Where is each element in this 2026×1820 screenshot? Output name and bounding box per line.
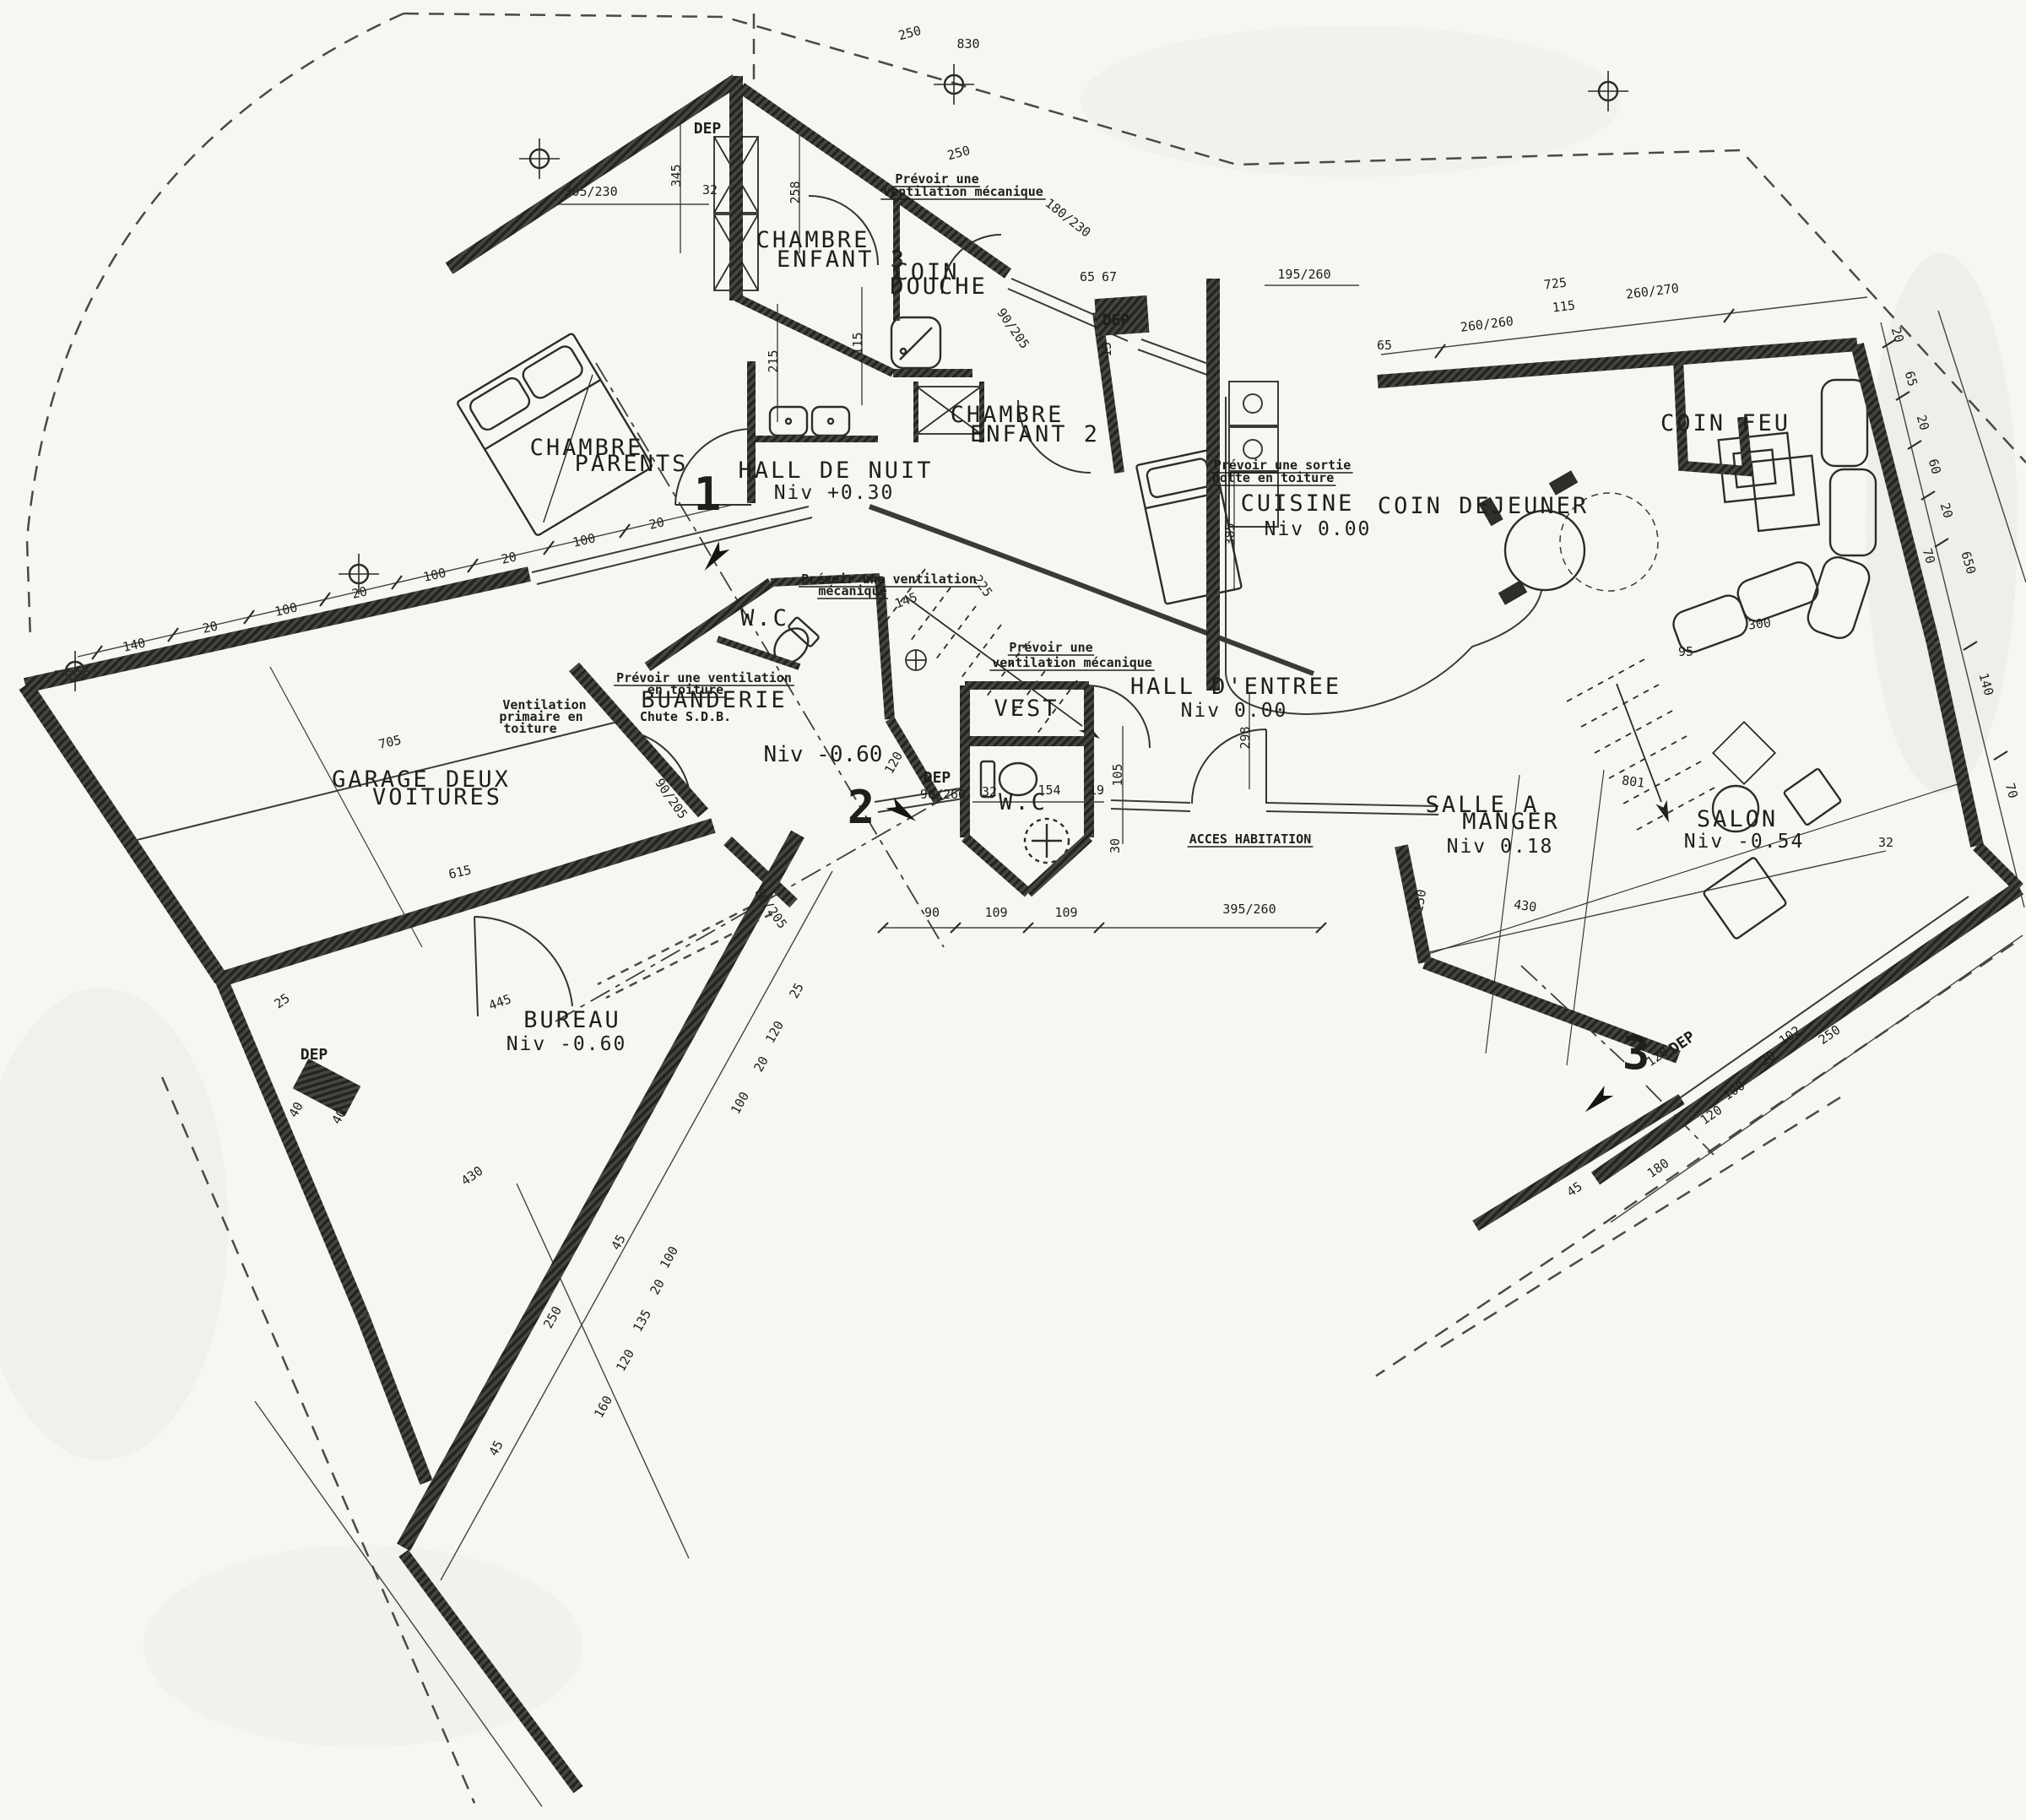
level-label-salle-a-manger: Niv 0.18	[1447, 836, 1554, 858]
dimension-14: 725	[1543, 274, 1568, 292]
dimension-67: 430	[1513, 896, 1537, 915]
dimension-30: 90/260	[920, 787, 966, 802]
dimension-66: 801	[1621, 772, 1645, 791]
floor-plan-drawing: CHAMBREENFANT 3COINDOUCHECHAMBREPARENTSH…	[0, 0, 2026, 1820]
room-label-hall-de-nuit-0: HALL DE NUIT	[738, 458, 933, 484]
room-label-bureau-0: BUREAU	[523, 1007, 621, 1033]
dep-label-0: DEP	[694, 120, 722, 138]
dimension-25: 19	[1089, 783, 1104, 798]
dimension-10: 15	[1099, 342, 1114, 357]
room-label-cuisine-0: CUISINE	[1241, 490, 1355, 517]
dimension-27: 109	[984, 905, 1007, 920]
room-label-salle-a-manger-1: MANGER	[1462, 809, 1560, 835]
dimension-22: 30	[1108, 838, 1123, 853]
dimension-5: 345	[669, 164, 684, 187]
annotation-note-vent-primaire-2: toiture	[503, 721, 556, 736]
dimension-0: 830	[956, 36, 979, 51]
dep-label-1: DEP	[1102, 311, 1130, 329]
dimension-21: 105	[1110, 763, 1125, 786]
dimension-19: 385	[1222, 523, 1238, 545]
annotation-note-ventilation-4-1: en toiture	[647, 682, 723, 697]
dep-label-3: DEP	[301, 1046, 328, 1064]
dimension-18: 65	[1377, 338, 1392, 353]
dimension-16: 115	[1552, 297, 1576, 315]
annotation-note-ventilation-3-1: ventilation mécanique	[992, 655, 1152, 670]
dimension-8: 215	[766, 349, 781, 372]
level-label-salon: Niv -0.54	[1684, 831, 1805, 853]
dimension-4: 305/230	[564, 184, 617, 199]
paper-background	[0, 0, 2026, 1820]
dimension-7: 258	[788, 181, 803, 203]
room-label-salon-0: SALON	[1697, 806, 1778, 832]
dimension-29: 395/260	[1222, 902, 1276, 917]
dimension-9: 115	[850, 332, 865, 355]
room-label-coin-dejeuner-0: COIN DEJEUNER	[1378, 493, 1589, 519]
room-label-coin-douche-1: DOUCHE	[890, 274, 988, 300]
annotation-note-hotte-1: hotte en toiture	[1212, 470, 1335, 485]
annotation-niveau-couloir-0: Niv -0.60	[764, 742, 883, 767]
room-label-coin-feu-0: COIN FEU	[1660, 410, 1790, 436]
dimension-64: 32	[1878, 835, 1893, 850]
annotation-note-acces-0: ACCES HABITATION	[1189, 831, 1312, 847]
dimension-13: 67	[1102, 269, 1117, 284]
level-label-cuisine: Niv 0.00	[1265, 518, 1372, 540]
section-marker-2: 2	[848, 781, 875, 834]
room-label-chambre-parents-1: PARENTS	[575, 451, 689, 477]
dimension-28: 109	[1054, 905, 1077, 920]
annotation-note-ventilation-2-1: mécanique	[818, 583, 886, 599]
level-label-hall-de-nuit: Niv +0.30	[774, 482, 895, 504]
floor-plan-sheet: CHAMBREENFANT 3COINDOUCHECHAMBREPARENTSH…	[0, 0, 2026, 1820]
dimension-20: 298	[1238, 726, 1253, 749]
dimension-26: 90	[924, 905, 940, 920]
room-label-chambre-enfant-3-1: ENFANT 3	[777, 246, 907, 273]
dimension-11: 195/260	[1277, 267, 1330, 282]
annotation-note-chute-sdb-0: Chute S.D.B.	[640, 709, 731, 724]
room-label-vestiaire-0: VEST	[994, 696, 1059, 722]
dimension-65: 95	[1678, 644, 1693, 659]
room-label-garage-1: VOITURES	[372, 784, 502, 810]
room-label-wc-haut-0: W.C	[740, 605, 789, 631]
annotation-note-ventilation-1-1: ventilation mécanique	[883, 184, 1043, 199]
room-label-hall-entree-0: HALL D'ENTREE	[1130, 674, 1341, 700]
section-marker-1: 1	[694, 468, 722, 521]
room-label-chambre-enfant-2-1: ENFANT 2	[970, 421, 1100, 447]
level-label-hall-entree: Niv 0.00	[1181, 700, 1288, 722]
level-label-bureau: Niv -0.60	[506, 1033, 627, 1055]
annotation-note-ventilation-3-0: Prévoir une	[1009, 640, 1092, 655]
dep-label-2: DEP	[924, 769, 951, 787]
section-marker-3: 3	[1622, 1026, 1650, 1080]
dimension-6: 32	[702, 182, 718, 198]
dimension-23: 32	[982, 784, 997, 799]
dimension-69: 300	[1747, 615, 1772, 632]
dimension-24: 154	[1037, 783, 1060, 798]
dimension-12: 65	[1080, 269, 1095, 284]
